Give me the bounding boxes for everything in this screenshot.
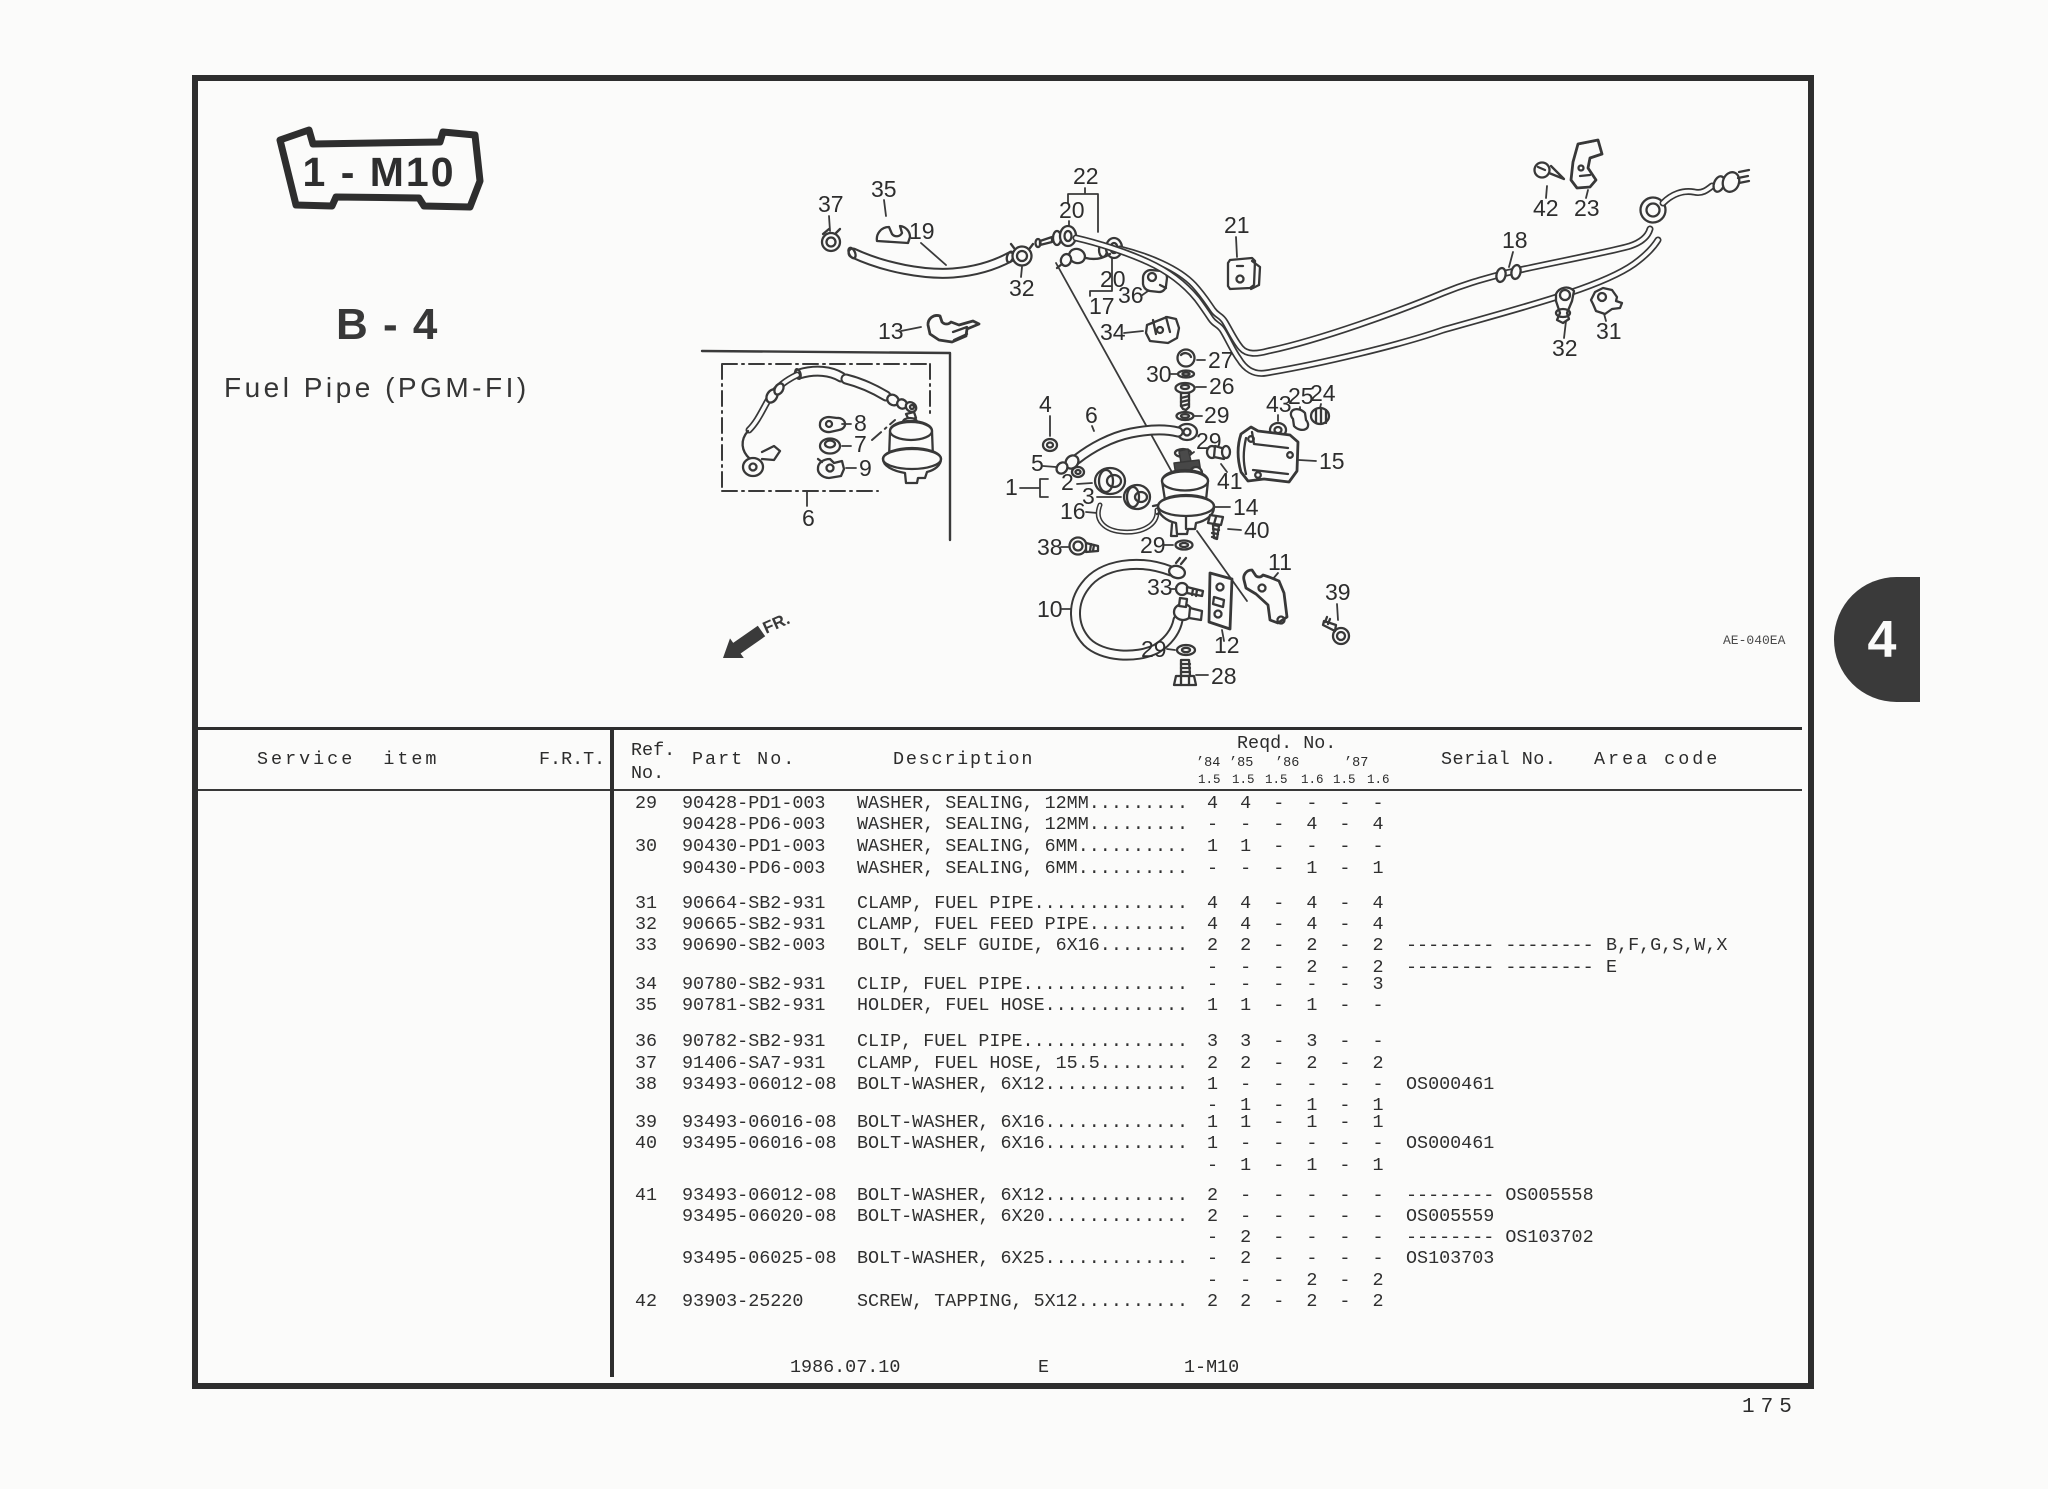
svg-text:26: 26	[1209, 373, 1235, 399]
svg-text:27: 27	[1208, 347, 1234, 373]
svg-text:18: 18	[1502, 227, 1528, 253]
svg-text:6: 6	[1085, 402, 1098, 428]
svg-text:36: 36	[1118, 282, 1144, 308]
svg-text:17: 17	[1089, 293, 1115, 319]
svg-text:41: 41	[1217, 468, 1243, 494]
svg-text:1: 1	[1005, 474, 1018, 500]
svg-text:28: 28	[1211, 663, 1237, 689]
svg-text:33: 33	[1147, 574, 1173, 600]
svg-text:2: 2	[1061, 469, 1074, 495]
svg-text:37: 37	[818, 191, 844, 217]
svg-text:40: 40	[1244, 517, 1270, 543]
svg-text:13: 13	[878, 318, 904, 344]
svg-text:10: 10	[1037, 596, 1063, 622]
svg-text:9: 9	[859, 455, 872, 481]
svg-text:30: 30	[1146, 361, 1172, 387]
svg-text:32: 32	[1009, 275, 1035, 301]
svg-text:29: 29	[1204, 402, 1230, 428]
svg-text:19: 19	[909, 218, 935, 244]
svg-text:31: 31	[1596, 318, 1622, 344]
svg-text:21: 21	[1224, 212, 1250, 238]
svg-text:5: 5	[1031, 450, 1044, 476]
svg-text:6: 6	[802, 505, 815, 531]
svg-text:11: 11	[1268, 549, 1292, 575]
svg-text:42: 42	[1533, 195, 1559, 221]
svg-text:16: 16	[1060, 498, 1086, 524]
svg-text:22: 22	[1073, 163, 1099, 189]
svg-text:29: 29	[1140, 532, 1166, 558]
svg-text:35: 35	[871, 176, 897, 202]
svg-text:FR.: FR.	[760, 609, 793, 637]
svg-text:12: 12	[1214, 632, 1240, 658]
svg-text:39: 39	[1325, 579, 1351, 605]
svg-text:24: 24	[1310, 380, 1336, 406]
svg-text:38: 38	[1037, 534, 1063, 560]
svg-text:7: 7	[854, 431, 867, 457]
svg-text:32: 32	[1552, 335, 1578, 361]
svg-text:23: 23	[1574, 195, 1600, 221]
svg-text:34: 34	[1100, 319, 1126, 345]
svg-text:15: 15	[1319, 448, 1345, 474]
svg-text:29: 29	[1141, 636, 1167, 662]
svg-text:1 - M10: 1 - M10	[303, 149, 456, 195]
svg-text:20: 20	[1059, 197, 1085, 223]
svg-text:4: 4	[1039, 391, 1052, 417]
